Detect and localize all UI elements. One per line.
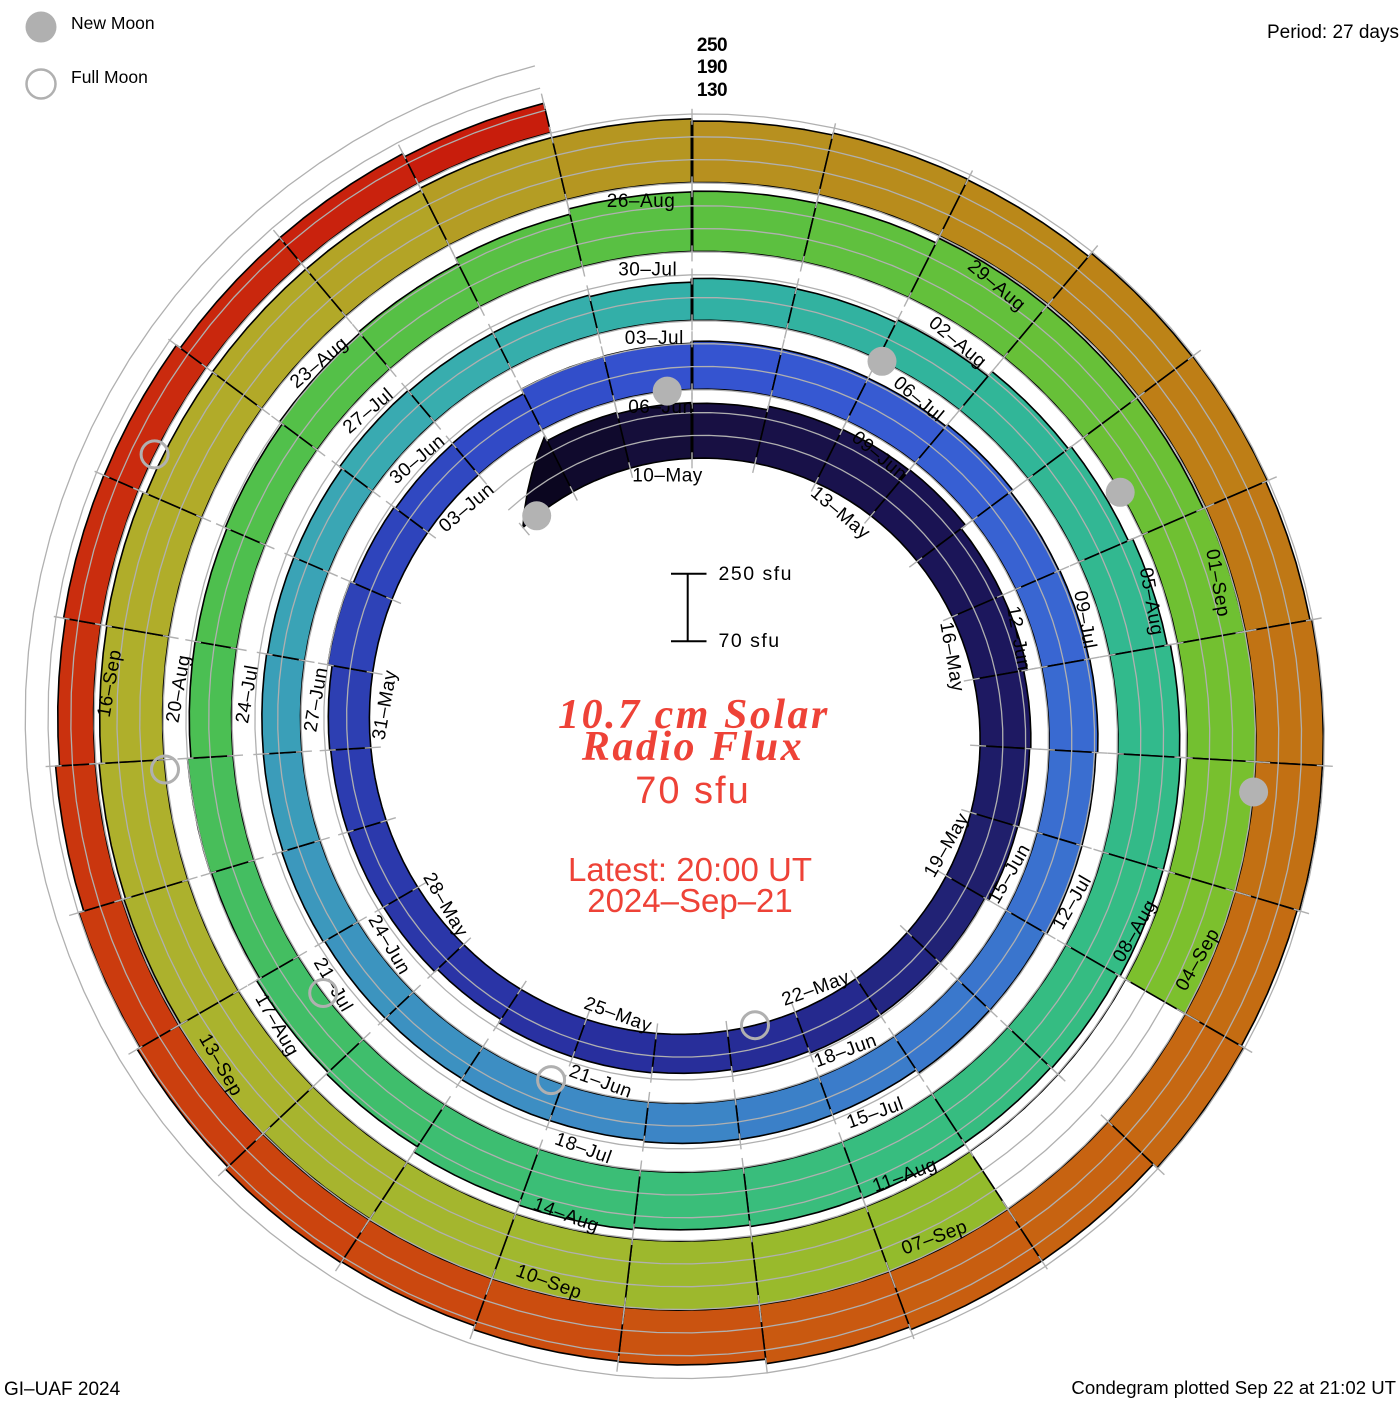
svg-text:30–Jul: 30–Jul: [618, 260, 677, 281]
svg-text:Radio Flux: Radio Flux: [581, 724, 804, 770]
svg-text:70 sfu: 70 sfu: [719, 630, 781, 652]
svg-text:130: 130: [697, 80, 727, 101]
svg-text:03–Jul: 03–Jul: [625, 328, 684, 349]
svg-text:Period: 27 days: Period: 27 days: [1267, 22, 1399, 43]
svg-text:2024–Sep–21: 2024–Sep–21: [587, 882, 793, 919]
svg-text:GI–UAF 2024: GI–UAF 2024: [4, 1379, 121, 1400]
svg-text:190: 190: [697, 57, 727, 78]
svg-text:250: 250: [697, 35, 727, 56]
svg-text:10–May: 10–May: [632, 466, 703, 487]
svg-text:70 sfu: 70 sfu: [635, 770, 751, 812]
svg-text:New Moon: New Moon: [71, 13, 155, 33]
svg-text:Full Moon: Full Moon: [71, 67, 148, 87]
svg-text:250 sfu: 250 sfu: [719, 563, 793, 585]
svg-text:26–Aug: 26–Aug: [607, 191, 676, 212]
svg-text:Condegram plotted Sep 22 at 21: Condegram plotted Sep 22 at 21:02 UT: [1071, 1377, 1396, 1398]
